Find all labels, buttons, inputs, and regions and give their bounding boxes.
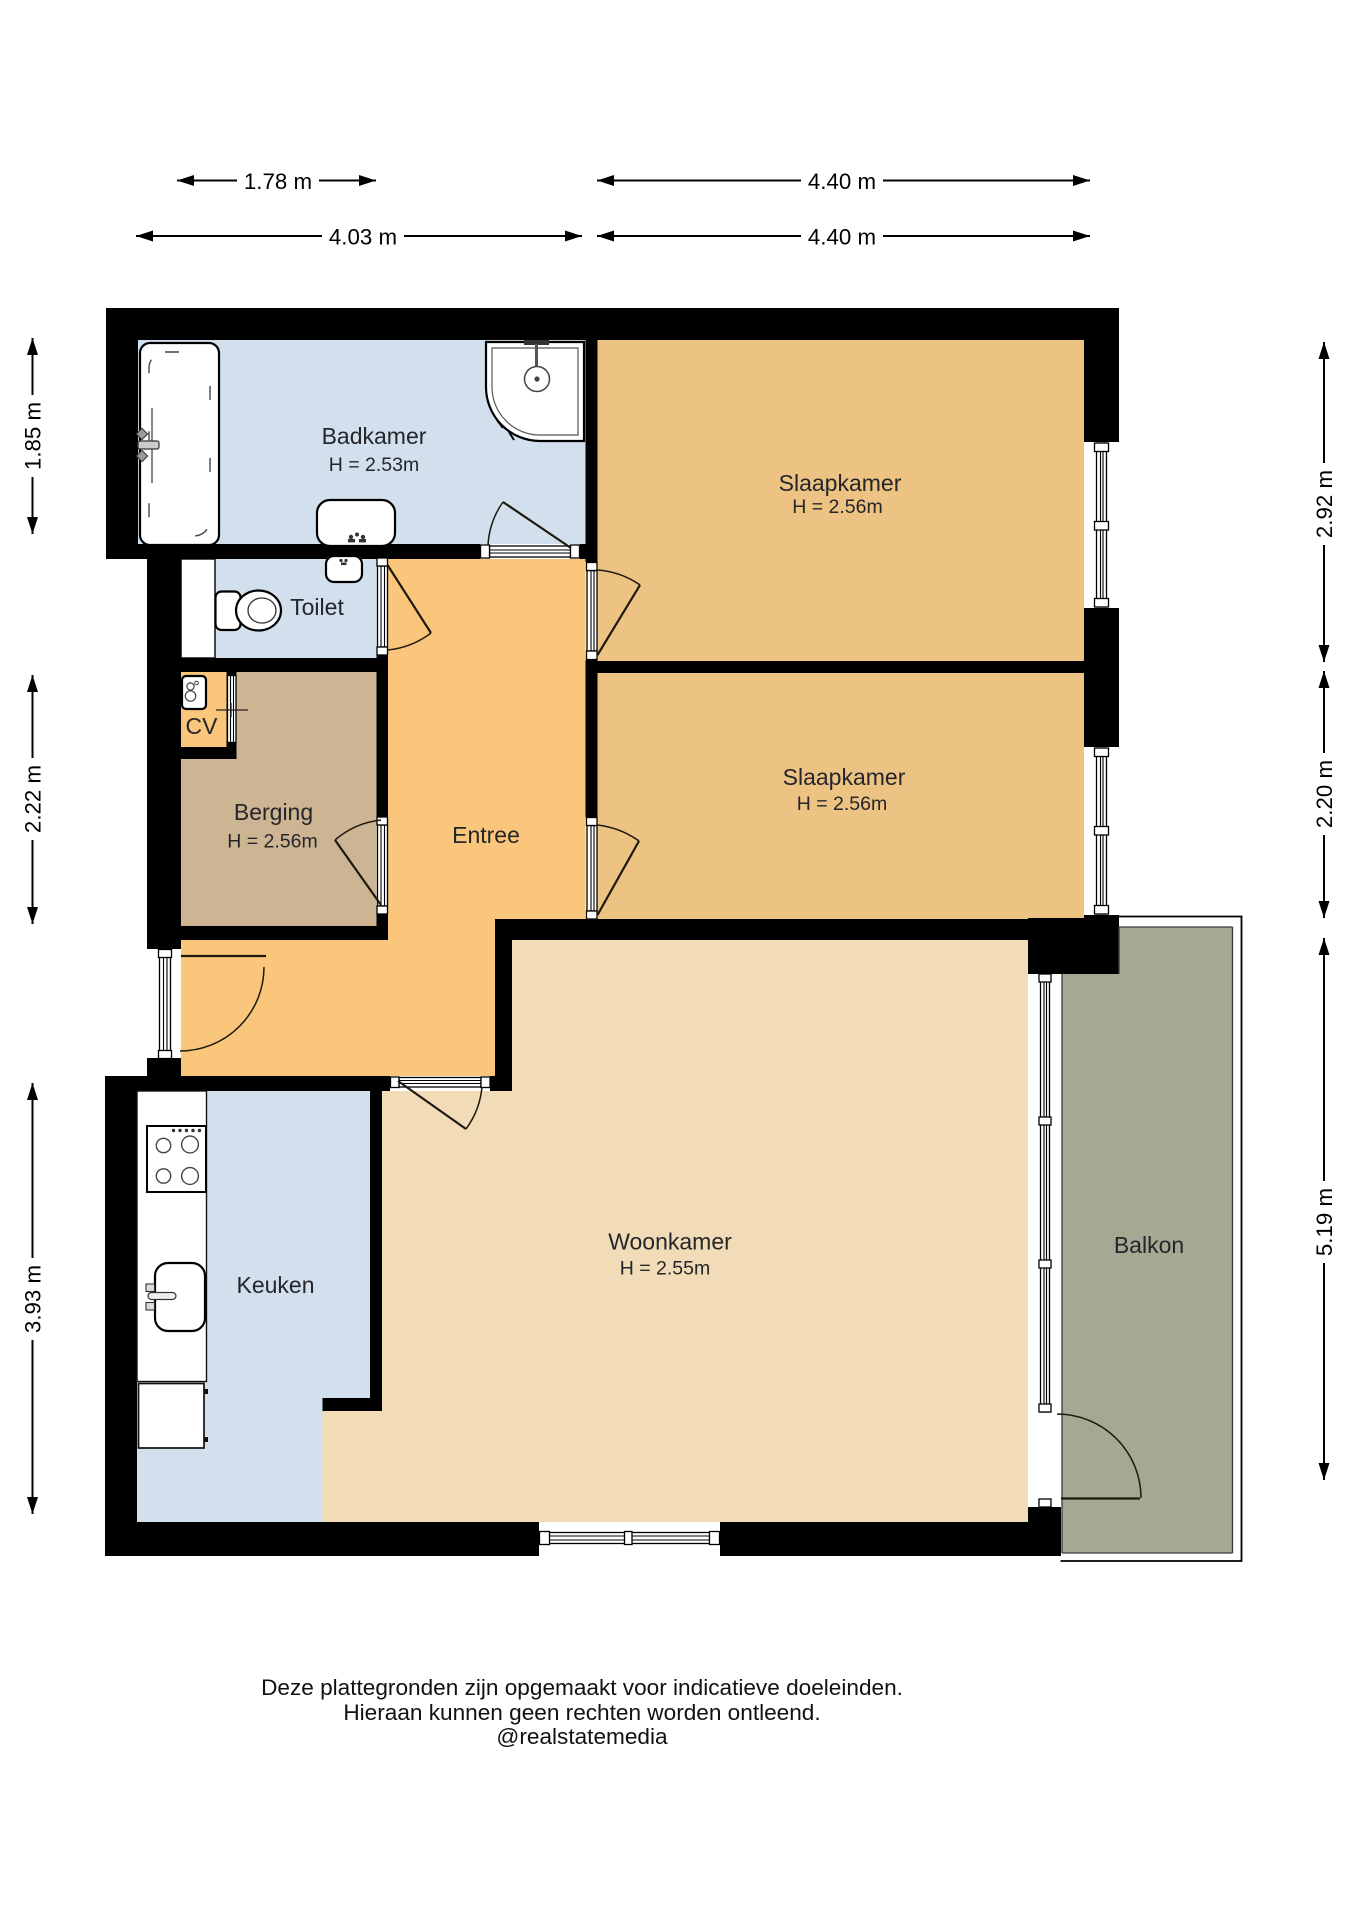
svg-text:Keuken: Keuken — [236, 1272, 314, 1298]
svg-text:Balkon: Balkon — [1114, 1232, 1184, 1258]
svg-text:4.40 m: 4.40 m — [808, 225, 876, 250]
svg-text:4.03 m: 4.03 m — [329, 225, 397, 250]
svg-text:5.19 m: 5.19 m — [1312, 1188, 1337, 1256]
svg-text:3.93 m: 3.93 m — [21, 1265, 46, 1333]
svg-text:1.85 m: 1.85 m — [21, 402, 46, 470]
svg-text:Slaapkamer: Slaapkamer — [783, 764, 906, 790]
svg-text:H = 2.53m: H = 2.53m — [329, 454, 420, 476]
svg-text:Hieraan kunnen geen rechten wo: Hieraan kunnen geen rechten worden ontle… — [343, 1700, 820, 1725]
svg-text:Badkamer: Badkamer — [322, 423, 427, 449]
svg-text:@realstatemedia: @realstatemedia — [496, 1724, 668, 1749]
svg-text:1.78 m: 1.78 m — [244, 169, 312, 194]
svg-text:Woonkamer: Woonkamer — [608, 1229, 732, 1255]
svg-text:Toilet: Toilet — [290, 594, 344, 620]
svg-text:CV: CV — [186, 713, 219, 739]
svg-text:Deze plattegronden zijn opgema: Deze plattegronden zijn opgemaakt voor i… — [261, 1675, 903, 1700]
svg-text:2.22 m: 2.22 m — [21, 765, 46, 833]
svg-text:H = 2.55m: H = 2.55m — [620, 1258, 711, 1280]
svg-text:2.20 m: 2.20 m — [1312, 760, 1337, 828]
svg-text:H = 2.56m: H = 2.56m — [792, 496, 883, 518]
svg-text:2.92 m: 2.92 m — [1312, 470, 1337, 538]
svg-text:Slaapkamer: Slaapkamer — [779, 470, 902, 496]
svg-text:Entree: Entree — [452, 822, 520, 848]
svg-text:H = 2.56m: H = 2.56m — [227, 831, 318, 853]
svg-text:Berging: Berging — [234, 799, 313, 825]
svg-text:H = 2.56m: H = 2.56m — [797, 793, 888, 815]
svg-text:4.40 m: 4.40 m — [808, 169, 876, 194]
